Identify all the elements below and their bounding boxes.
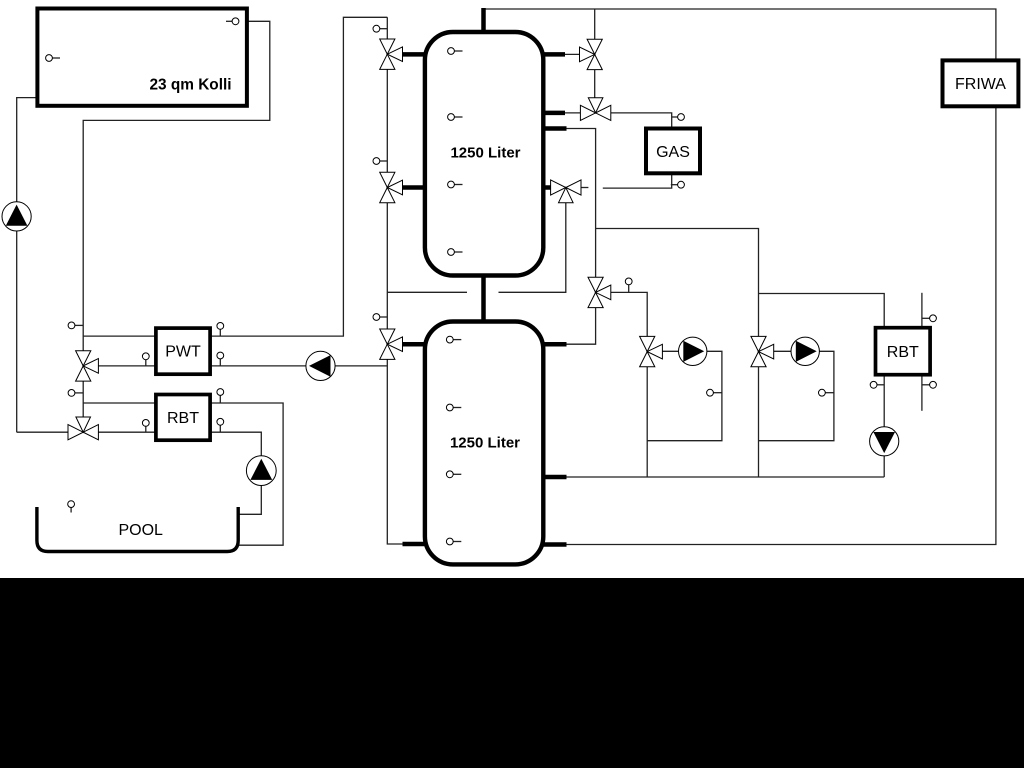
svg-text:RBT: RBT [167, 410, 199, 427]
svg-text:PWT: PWT [165, 344, 201, 361]
svg-text:FRIWA: FRIWA [955, 76, 1006, 93]
svg-text:GAS: GAS [656, 144, 690, 161]
svg-text:POOL: POOL [118, 522, 163, 539]
svg-text:1250 Liter: 1250 Liter [450, 435, 520, 452]
svg-text:23 qm Kolli: 23 qm Kolli [149, 76, 231, 93]
svg-text:RBT: RBT [887, 344, 919, 361]
svg-text:1250 Liter: 1250 Liter [450, 145, 520, 162]
